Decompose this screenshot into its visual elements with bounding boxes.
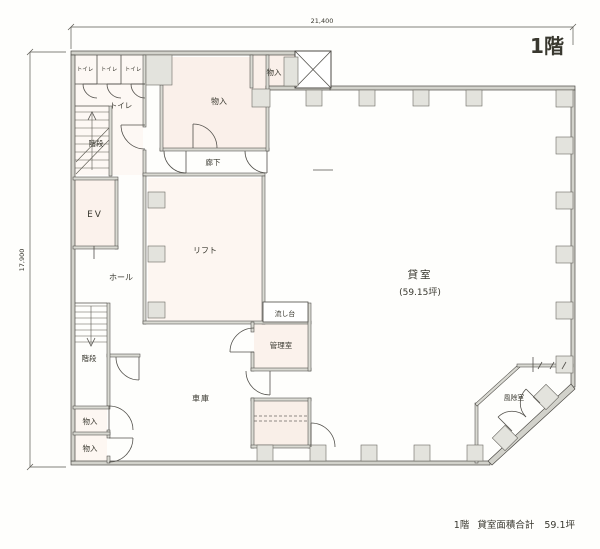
dim-width-label: 21,400 (311, 17, 334, 25)
footer-caption: 1階貸室面積合計59.1坪 (454, 519, 576, 531)
room-label-manager: 管理室 (270, 340, 293, 350)
shaft-box (295, 51, 331, 88)
floor-title: 1階 (530, 34, 564, 58)
room-label-storage-top: 物入 (267, 67, 282, 77)
room-label-storage-bl2: 物入 (83, 443, 98, 453)
room-label-storage-bl1: 物入 (83, 416, 98, 426)
floor-plan-drawing: 21,400 17,900 1階 トイレ トイレ トイレ トイレ 階段 物入 物… (0, 0, 600, 549)
outer-walls (71, 51, 575, 465)
room-label-rental-area: (59.15坪) (399, 287, 441, 298)
room-label-toilet-stall-3: トイレ (125, 67, 142, 73)
room-label-toilet: トイレ (110, 101, 133, 110)
room-label-vestibule: 風除室 (504, 393, 525, 402)
room-label-stairs-lower: 階段 (82, 353, 97, 363)
room-label-lift: リフト (193, 246, 217, 255)
room-label-corridor: 廊下 (206, 157, 221, 167)
room-label-stairs-upper: 階段 (89, 138, 104, 148)
room-label-rental: 貸室 (408, 268, 433, 281)
room-label-garage: 車庫 (192, 393, 210, 403)
room-label-sink: 流し台 (275, 309, 296, 318)
room-label-toilet-stall-1: トイレ (77, 67, 94, 73)
stairs-lower (75, 306, 107, 346)
chamfer-wall (488, 384, 575, 465)
footer-floor: 1階 (454, 520, 470, 531)
room-label-elevator: EV (87, 210, 103, 220)
room-label-toilet-stall-2: トイレ (101, 67, 118, 73)
footer-value: 59.1坪 (544, 519, 575, 531)
room-label-storage-main: 物入 (211, 96, 227, 106)
room-label-hall: ホール (109, 273, 133, 282)
footer-label: 貸室面積合計 (477, 519, 535, 531)
dim-height-label: 17,900 (18, 249, 26, 272)
floor-plan-sheet: 21,400 17,900 1階 トイレ トイレ トイレ トイレ 階段 物入 物… (0, 0, 600, 549)
